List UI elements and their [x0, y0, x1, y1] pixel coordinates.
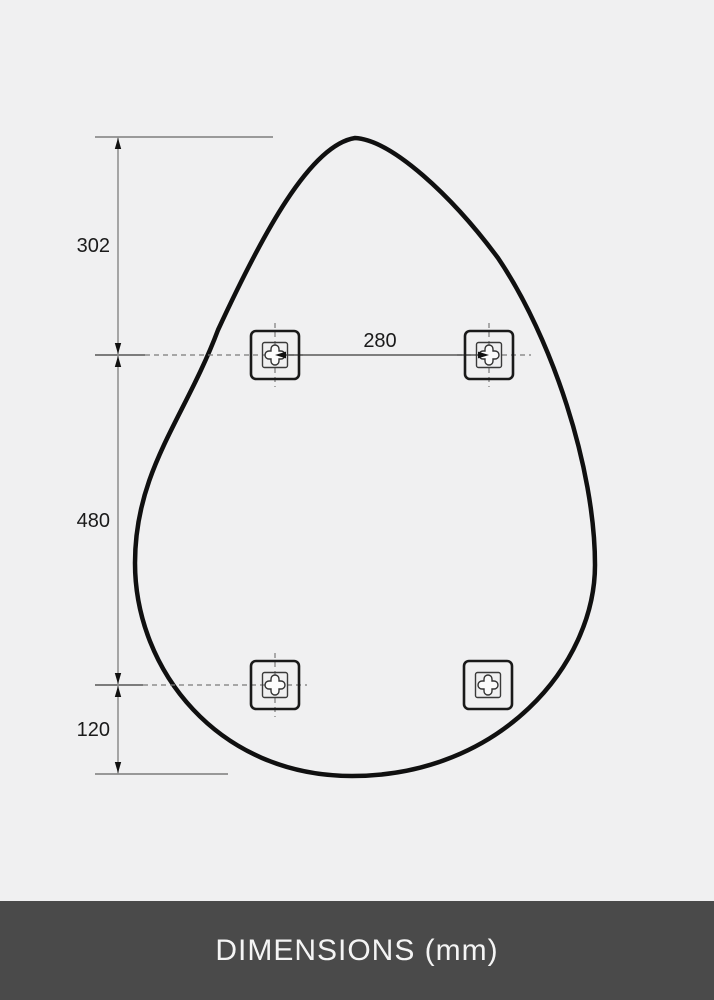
arrow-down-at-lower-holes-icon: [115, 673, 121, 684]
diagram-canvas: 302 480 120 280: [0, 0, 714, 901]
dimensions-banner: DIMENSIONS (mm): [0, 901, 714, 1000]
arrow-up-at-top-icon: [115, 138, 121, 149]
dashed-centerlines: [143, 323, 531, 717]
dim-label-horizontal-spacing: 280: [363, 330, 396, 352]
vertical-dimension-line-group: [115, 137, 121, 774]
dim-label-bottom-offset: 120: [77, 719, 110, 741]
dimension-diagram-page: 302 480 120 280 DIMENSIONS (mm): [0, 0, 714, 1000]
bracket-keyhole-cross-icon: [478, 675, 498, 695]
reference-lines: [95, 137, 273, 774]
arrow-down-at-upper-holes-icon: [115, 343, 121, 354]
banner-label: DIMENSIONS (mm): [215, 934, 498, 968]
mirror-outline: [135, 138, 595, 776]
mounting-bracket-bottom-right: [464, 661, 512, 709]
dim-label-vertical-spacing: 480: [77, 510, 110, 532]
dim-label-top-offset: 302: [77, 235, 110, 257]
arrow-down-at-bottom-icon: [115, 762, 121, 773]
arrow-up-below-upper-holes-icon: [115, 356, 121, 367]
bracket-keyhole-cross-icon: [265, 675, 285, 695]
arrow-up-below-lower-holes-icon: [115, 686, 121, 697]
